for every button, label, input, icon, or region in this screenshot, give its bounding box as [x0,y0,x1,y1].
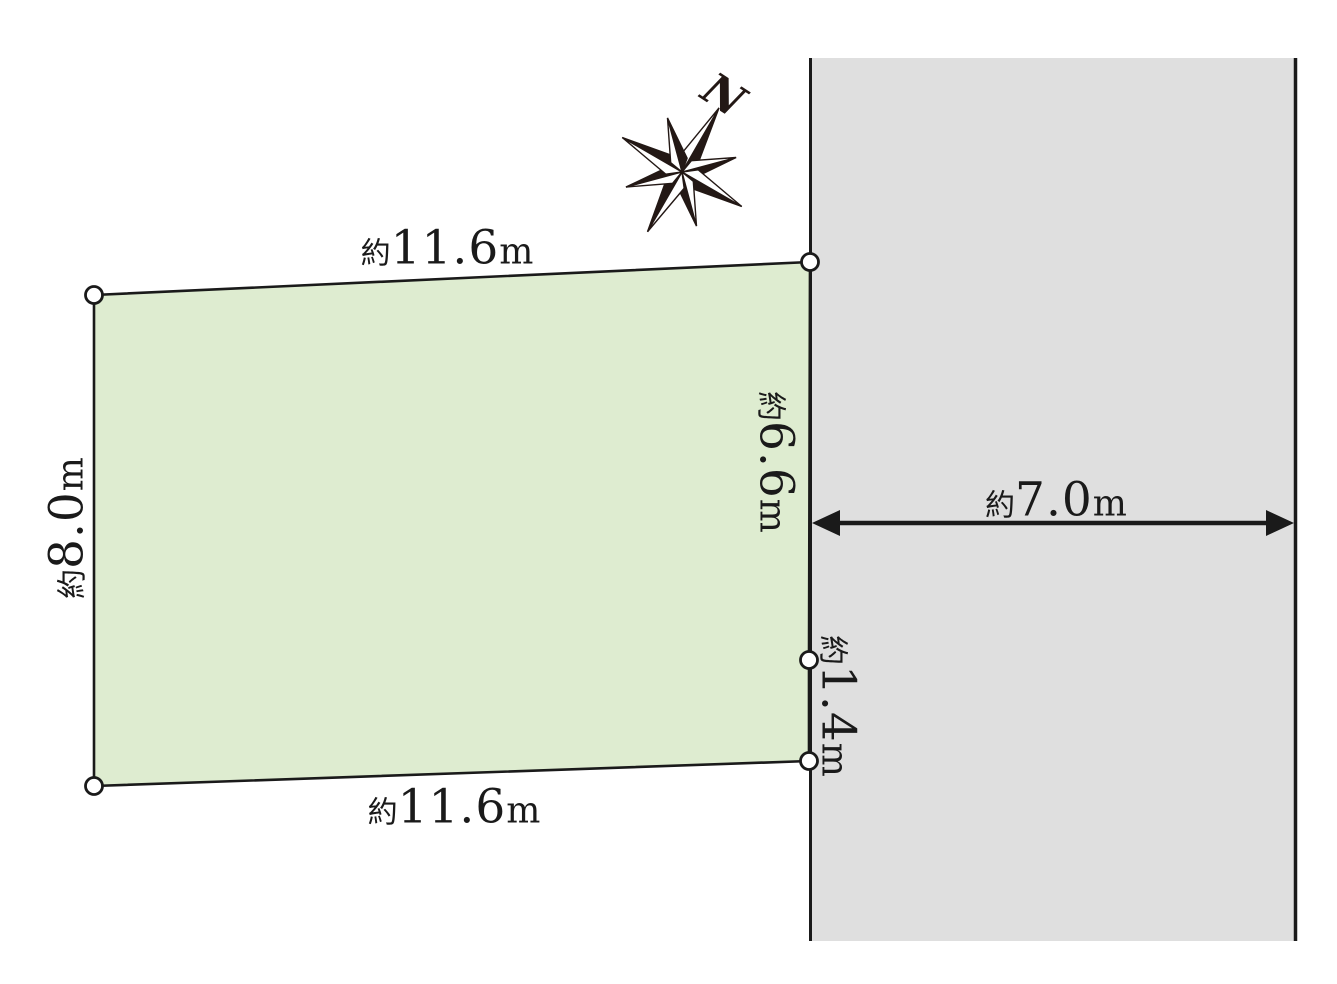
dimension-prefix: 約 [815,635,850,665]
dimension-unit: m [51,457,92,491]
dimension-label-left-edge: 約8.0m [44,457,91,599]
dimension-label-road-width: 約7.0m [985,477,1127,524]
dimension-unit: m [752,499,793,533]
parcel-polygon [94,262,810,786]
dimension-label-right-edge-lower: 約1.4m [815,635,862,777]
site-plan-canvas: 約11.6m 約11.6m 約8.0m 約6.6m 約1.4m 約7.0m N [0,0,1337,984]
dimension-value: 7.0 [1015,473,1093,528]
plot-diagram [0,0,1337,984]
dimension-value: 6.6 [749,421,804,499]
dimension-unit: m [1093,484,1127,525]
vertex-top-left [86,287,103,304]
dimension-unit: m [506,791,540,832]
dimension-prefix: 約 [56,569,91,599]
dimension-prefix: 約 [985,489,1015,524]
dimension-unit: m [814,743,855,777]
vertex-top-right [802,254,819,271]
dimension-value: 1.4 [811,665,866,743]
vertex-bottom-left [86,778,103,795]
dimension-value: 11.6 [391,221,500,276]
dimension-unit: m [499,232,533,273]
dimension-label-bottom-edge: 約11.6m [368,784,541,831]
dimension-prefix: 約 [368,796,398,831]
dimension-label-top-edge: 約11.6m [361,225,534,272]
dimension-label-right-edge-upper: 約6.6m [753,391,800,533]
dimension-value: 8.0 [40,491,95,569]
dimension-prefix: 約 [361,237,391,272]
dimension-value: 11.6 [398,780,507,835]
compass-rose-icon [588,73,779,266]
dimension-prefix: 約 [753,391,788,421]
